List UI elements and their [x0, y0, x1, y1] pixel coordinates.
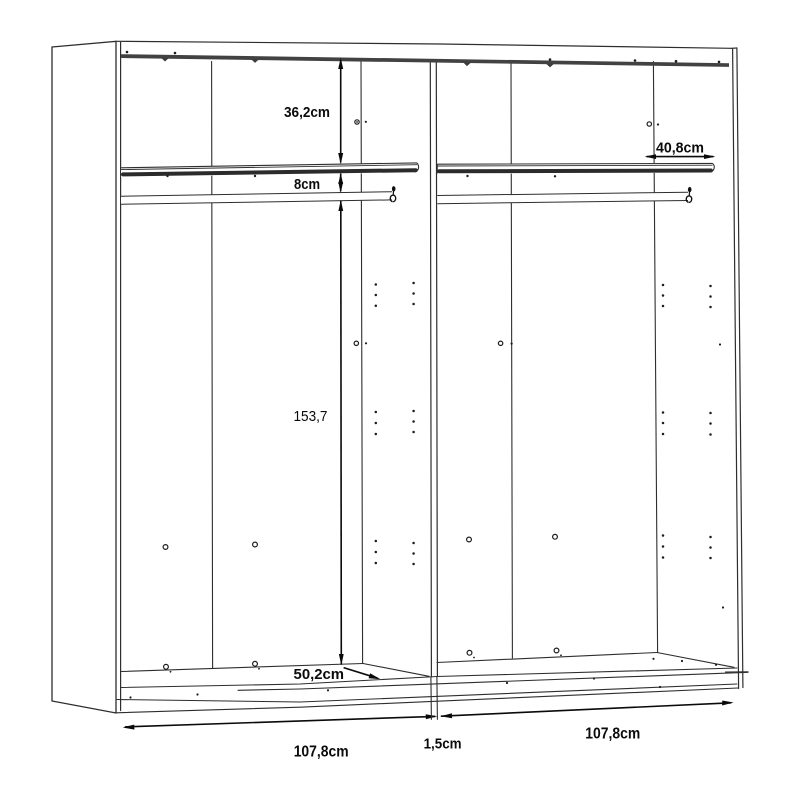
svg-text:1,5cm: 1,5cm [424, 736, 462, 753]
svg-text:8cm: 8cm [294, 176, 320, 193]
svg-text:107,8cm: 107,8cm [294, 743, 349, 760]
svg-text:36,2cm: 36,2cm [284, 104, 330, 121]
svg-text:107,8cm: 107,8cm [585, 725, 640, 742]
svg-text:40,8cm: 40,8cm [656, 140, 704, 156]
svg-text:50,2cm: 50,2cm [294, 667, 345, 683]
svg-text:153,7: 153,7 [294, 408, 328, 425]
